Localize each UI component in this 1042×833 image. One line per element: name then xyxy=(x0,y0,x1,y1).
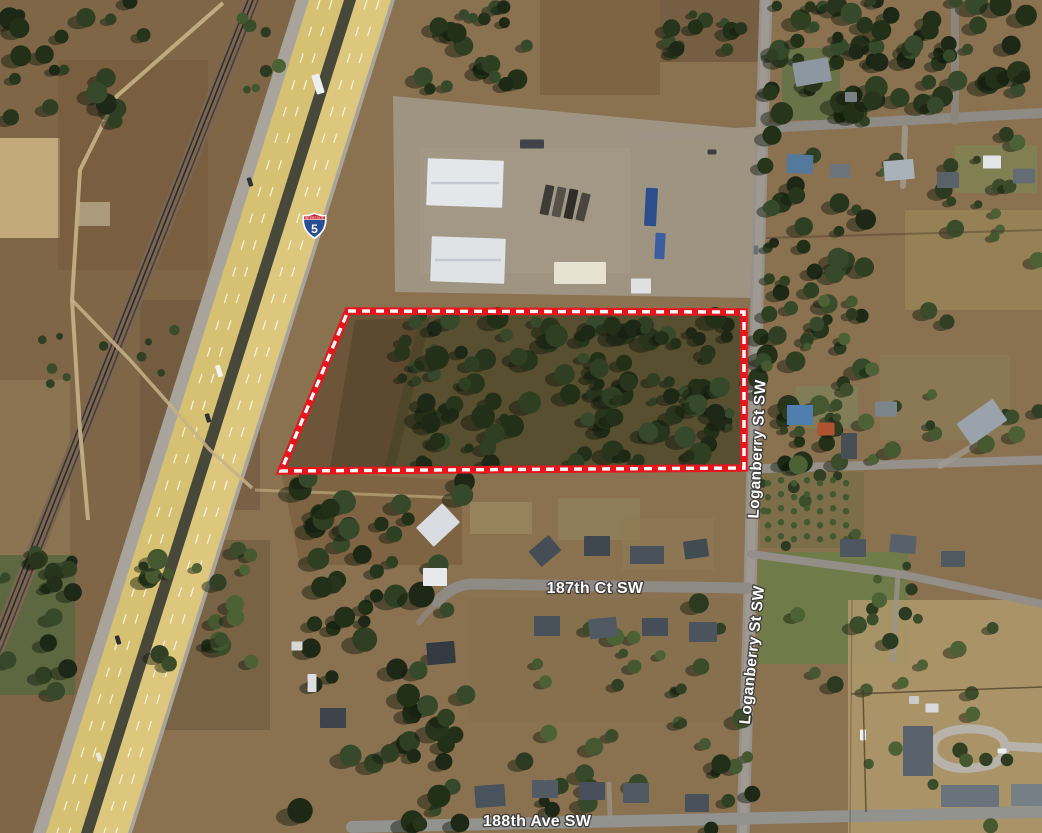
building xyxy=(630,546,664,564)
building xyxy=(1011,784,1042,806)
building xyxy=(534,616,560,636)
building xyxy=(292,642,303,651)
building xyxy=(520,140,544,149)
building xyxy=(579,782,605,800)
building xyxy=(423,568,447,586)
building xyxy=(631,279,651,294)
building xyxy=(941,785,999,807)
building xyxy=(474,784,505,808)
building xyxy=(903,726,933,776)
building xyxy=(654,233,665,259)
shield-banner-text: INTERSTATE xyxy=(305,216,324,220)
building xyxy=(845,92,857,102)
building xyxy=(642,618,668,636)
street-label-188th-ave: 188th Ave SW xyxy=(483,813,592,830)
building xyxy=(983,156,1001,169)
building xyxy=(941,551,965,567)
building xyxy=(875,402,897,417)
vehicle xyxy=(860,730,866,741)
street-label-187th-ct: 187th Ct SW xyxy=(547,580,644,597)
building xyxy=(926,704,939,713)
building xyxy=(320,708,346,728)
building xyxy=(623,783,649,803)
building xyxy=(841,433,857,459)
building xyxy=(644,188,658,227)
vehicle xyxy=(998,749,1007,754)
building xyxy=(532,780,558,798)
building xyxy=(818,423,835,436)
building xyxy=(909,696,919,704)
vehicle xyxy=(754,246,759,255)
building xyxy=(685,794,709,812)
building xyxy=(830,164,850,178)
building xyxy=(787,154,814,174)
building xyxy=(883,159,915,182)
vehicle xyxy=(708,150,717,155)
building xyxy=(787,405,813,425)
building xyxy=(840,539,866,557)
building xyxy=(426,641,456,665)
building xyxy=(689,622,717,642)
building xyxy=(554,262,606,284)
building xyxy=(683,538,709,559)
building xyxy=(937,172,959,188)
aerial-map-canvas[interactable]: Loganberry St SW Loganberry St SW 187th … xyxy=(0,0,1042,833)
building xyxy=(1013,169,1035,184)
building xyxy=(889,534,916,554)
building xyxy=(308,674,317,692)
aerial-map[interactable]: Loganberry St SW Loganberry St SW 187th … xyxy=(0,0,1042,833)
shield-route-number: 5 xyxy=(311,222,318,236)
building xyxy=(588,617,618,640)
building xyxy=(584,536,610,556)
